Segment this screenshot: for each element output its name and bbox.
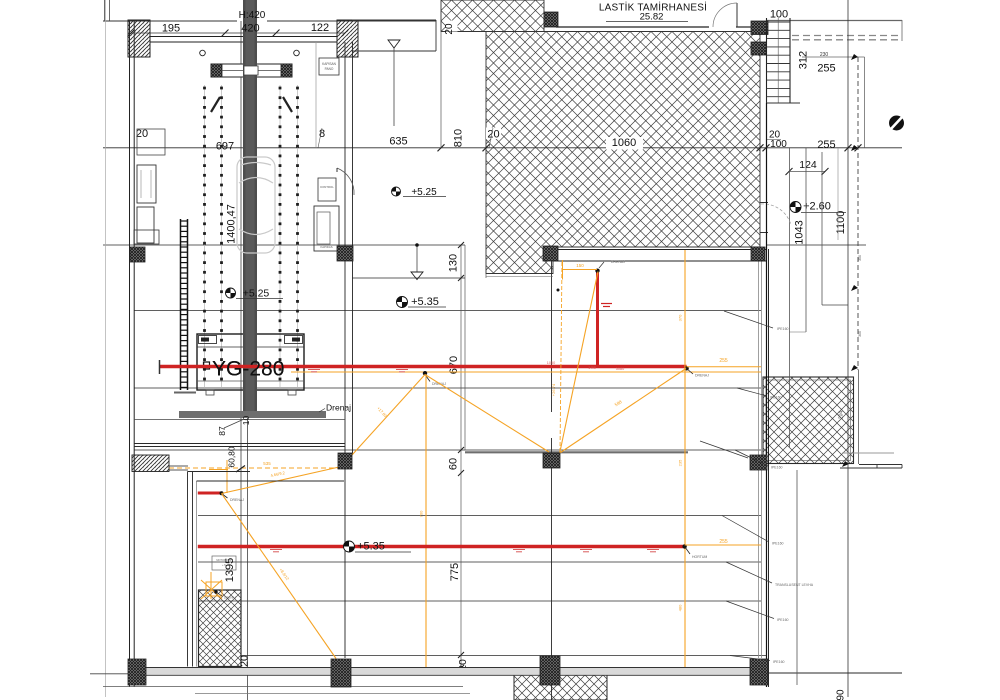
svg-text:90: 90 [836,689,847,700]
svg-text:370: 370 [678,314,683,321]
svg-text:312: 312 [798,51,810,69]
svg-text:1043: 1043 [794,220,806,244]
svg-text:130: 130 [448,254,460,272]
svg-text:535: 535 [263,461,271,466]
svg-text:420: 420 [241,23,259,35]
svg-text:IPE160: IPE160 [773,660,785,664]
svg-text:5080: 5080 [616,367,624,371]
svg-text:195: 195 [162,23,180,35]
svg-text:230: 230 [820,52,829,58]
svg-text:MOTOPOMP: MOTOPOMP [216,558,232,562]
svg-text:IPE160: IPE160 [771,466,783,470]
svg-text:1060: 1060 [612,137,636,149]
svg-text:635: 635 [389,136,407,148]
svg-text:700: 700 [419,510,424,517]
svg-text:+2.60: +2.60 [803,201,831,213]
svg-text:20: 20 [239,655,251,667]
svg-text:IPE160: IPE160 [770,396,782,400]
svg-text:25.82: 25.82 [640,12,664,23]
svg-text:20: 20 [136,128,148,140]
svg-text:480: 480 [678,604,683,611]
svg-text:124: 124 [799,159,817,171]
svg-text:100: 100 [770,9,788,21]
svg-text:60: 60 [448,458,460,470]
svg-text:YG-280: YG-280 [212,358,284,381]
svg-text:DRENAJ: DRENAJ [224,596,237,600]
svg-text:KAPIDAS: KAPIDAS [320,245,332,249]
svg-text:100: 100 [770,139,787,150]
svg-text:255: 255 [719,539,728,545]
svg-text:810: 810 [453,129,465,147]
svg-text:IPE160: IPE160 [777,327,789,331]
svg-text:+ N: + N [222,563,226,567]
svg-text:DRENAJ: DRENAJ [230,498,244,502]
svg-text:KAPISAN: KAPISAN [322,62,337,66]
svg-text:H:420: H:420 [239,10,266,21]
svg-text:235: 235 [678,459,683,466]
svg-text:1400,47: 1400,47 [226,204,238,244]
svg-text:60,80: 60,80 [227,446,237,468]
svg-text:HORTUM: HORTUM [692,555,707,559]
svg-text:204: 204 [839,411,845,420]
svg-text:10: 10 [241,416,251,426]
svg-text:IPE160: IPE160 [777,618,789,622]
svg-text:DRENAJ: DRENAJ [695,374,709,378]
svg-text:122: 122 [311,22,329,34]
svg-text:+5.35: +5.35 [411,296,439,308]
svg-text:20: 20 [487,129,499,141]
svg-text:255: 255 [719,358,728,364]
svg-text:IPE160: IPE160 [772,542,784,546]
svg-text:1100: 1100 [835,211,847,235]
svg-text:1050: 1050 [547,361,555,365]
svg-text:+5.25: +5.25 [243,288,270,300]
svg-text:DRENAJ: DRENAJ [432,382,446,386]
svg-text:300: 300 [858,331,862,337]
svg-text:255: 255 [817,139,835,151]
svg-text:150: 150 [576,263,584,268]
svg-text:20: 20 [444,23,455,35]
svg-text:697: 697 [216,141,234,153]
svg-text:+5.35: +5.35 [357,541,385,553]
svg-text:775: 775 [449,563,461,581]
svg-text:TRANSLUSENT LEVHA: TRANSLUSENT LEVHA [775,583,814,587]
svg-text:255: 255 [817,63,835,75]
svg-text:1498: 1498 [588,366,596,370]
svg-text:PANO: PANO [325,67,334,71]
svg-text:350: 350 [858,255,862,261]
svg-text:DRENAJ: DRENAJ [611,260,625,264]
svg-text:Drenaj: Drenaj [326,403,351,413]
svg-text:KONTROL: KONTROL [320,185,334,189]
svg-text:+26.74: +26.74 [551,383,556,396]
